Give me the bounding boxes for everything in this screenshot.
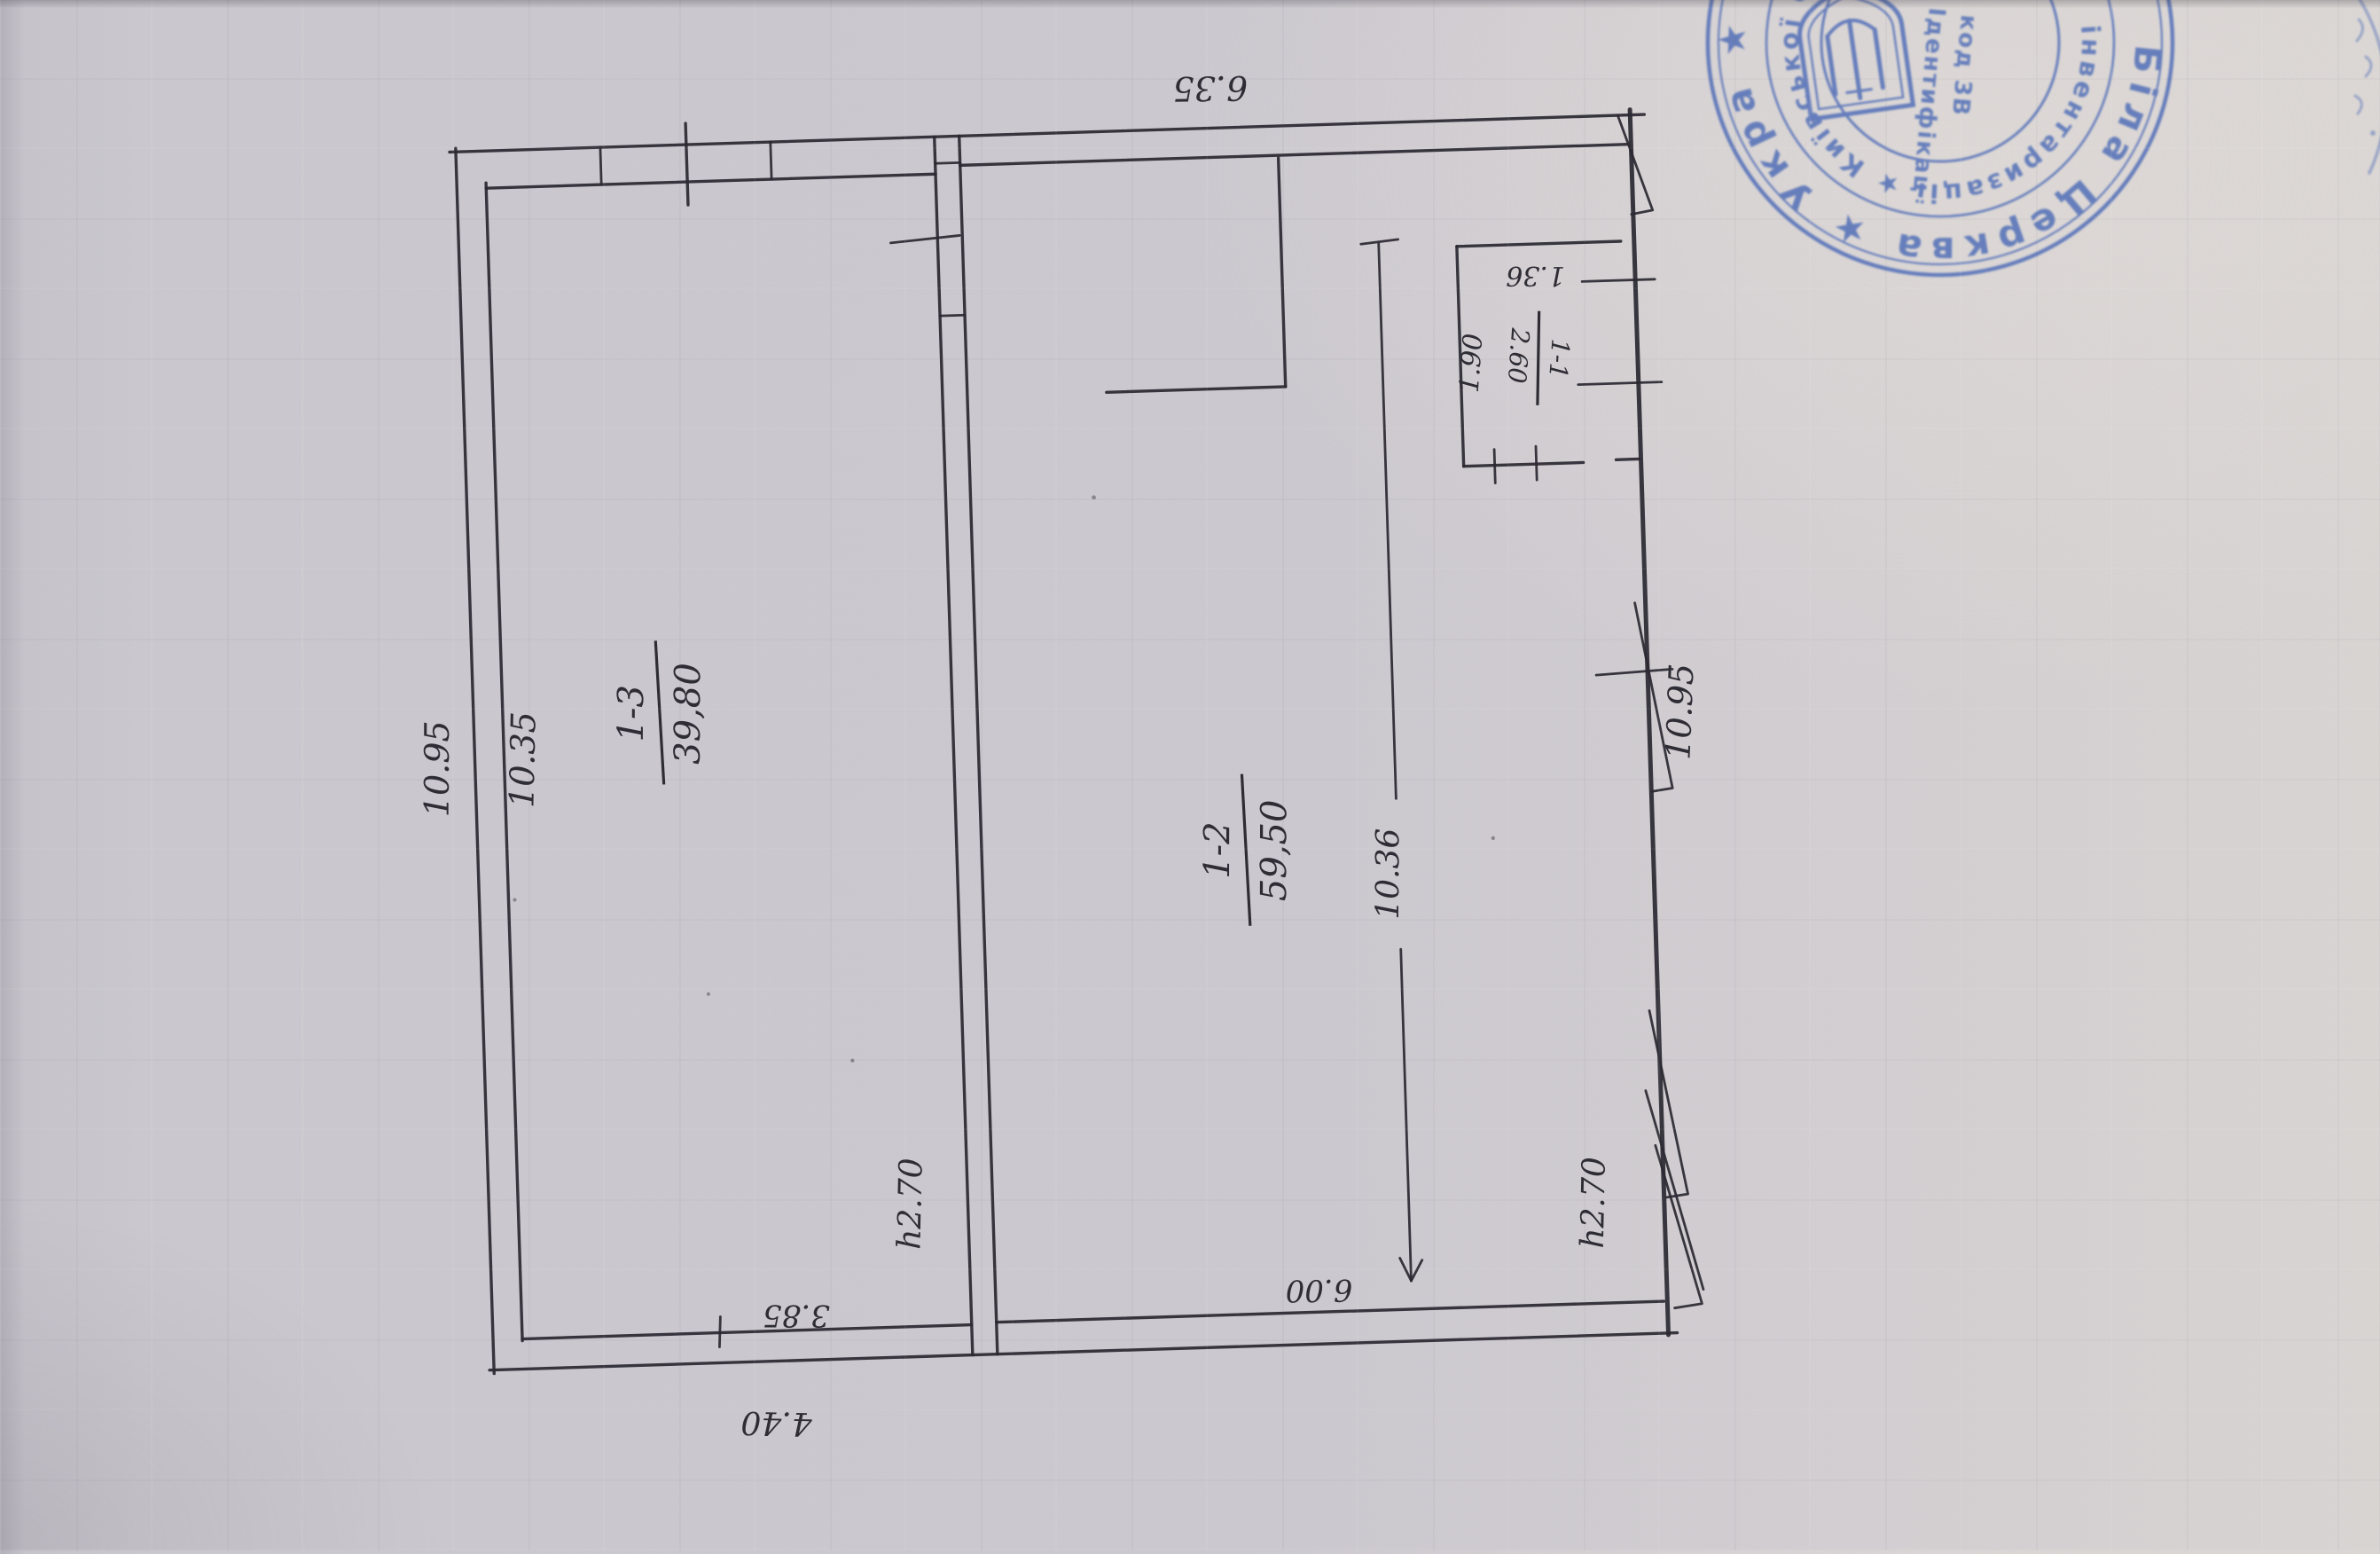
interior-wall-stub — [1100, 158, 1286, 392]
dim-bottom-outer: 4.40 — [740, 1404, 813, 1442]
dim-room2-inner-height: 10.36 — [1370, 828, 1406, 920]
height-label-right-text: h2.70 — [1575, 1157, 1613, 1249]
top-wall-ticks — [599, 121, 772, 208]
dim-room2-inner-width-text: 6.00 — [1285, 1272, 1352, 1308]
dim-small-room-depth-text: 1.90 — [1454, 333, 1490, 394]
room-1-3-area: 39,80 — [668, 663, 709, 765]
dim-bottom-outer-text: 4.40 — [740, 1404, 813, 1442]
height-label-left: h2.70 — [891, 1158, 929, 1250]
dim-bottom-inner-left-text: 3.85 — [763, 1298, 830, 1333]
room-1-1-label: 1-1 2.60 — [1500, 309, 1578, 408]
dim-left-inner: 10.35 — [502, 711, 543, 809]
room-1-1-number: 1-1 — [1543, 338, 1575, 380]
dim-top-width: 6.35 — [1172, 68, 1248, 108]
dim-small-room-width-text: 1.36 — [1506, 260, 1565, 291]
floor-plan-scan: 6.35 10.95 10.35 1-3 39,80 h2.70 3.85 4.… — [0, 0, 2380, 1550]
right-wall-marks — [682, 114, 1704, 1346]
height-label-right: h2.70 — [1575, 1157, 1613, 1249]
dim-small-room-depth: 1.90 — [1454, 333, 1490, 394]
floor-plan: 6.35 10.95 10.35 1-3 39,80 h2.70 3.85 4.… — [395, 53, 1725, 1454]
dim-right-outer: 10.95 — [1658, 663, 1701, 760]
official-stamp: Біла Церква ★ Укра ★ МІСЬК інвентаризаці… — [1658, 0, 2221, 325]
room-1-1-area: 2.60 — [1502, 326, 1536, 385]
dim-room2-inner-width: 6.00 — [1285, 1272, 1352, 1308]
dim-top-width-text: 6.35 — [1172, 68, 1248, 108]
height-label-left-text: h2.70 — [891, 1158, 929, 1250]
dim-bottom-inner-left: 3.85 — [763, 1298, 830, 1333]
dim-small-room-width: 1.36 — [1506, 260, 1565, 291]
stamp-id-line2: код 3В — [1946, 13, 1982, 118]
room-1-2-label: 1-2 59,50 — [1197, 774, 1296, 926]
room-1-3-label: 1-3 39,80 — [611, 640, 709, 784]
dimension-line-10-36 — [1361, 239, 1431, 1282]
dim-left-outer-text: 10.95 — [418, 720, 457, 817]
room-1-3-number: 1-3 — [611, 685, 652, 742]
room-1-2-number: 1-2 — [1197, 821, 1238, 879]
room-1-2-area: 59,50 — [1254, 799, 1295, 901]
dim-room2-inner-height-text: 10.36 — [1370, 828, 1406, 920]
stamp-id-line2-text: код 3В — [1946, 13, 1982, 118]
dim-left-inner-text: 10.35 — [502, 711, 543, 809]
stamp-edge-remnant — [2341, 0, 2380, 173]
ink-specks — [501, 483, 1501, 1073]
dim-left-outer: 10.95 — [418, 720, 457, 817]
dim-right-outer-text: 10.95 — [1658, 663, 1701, 760]
